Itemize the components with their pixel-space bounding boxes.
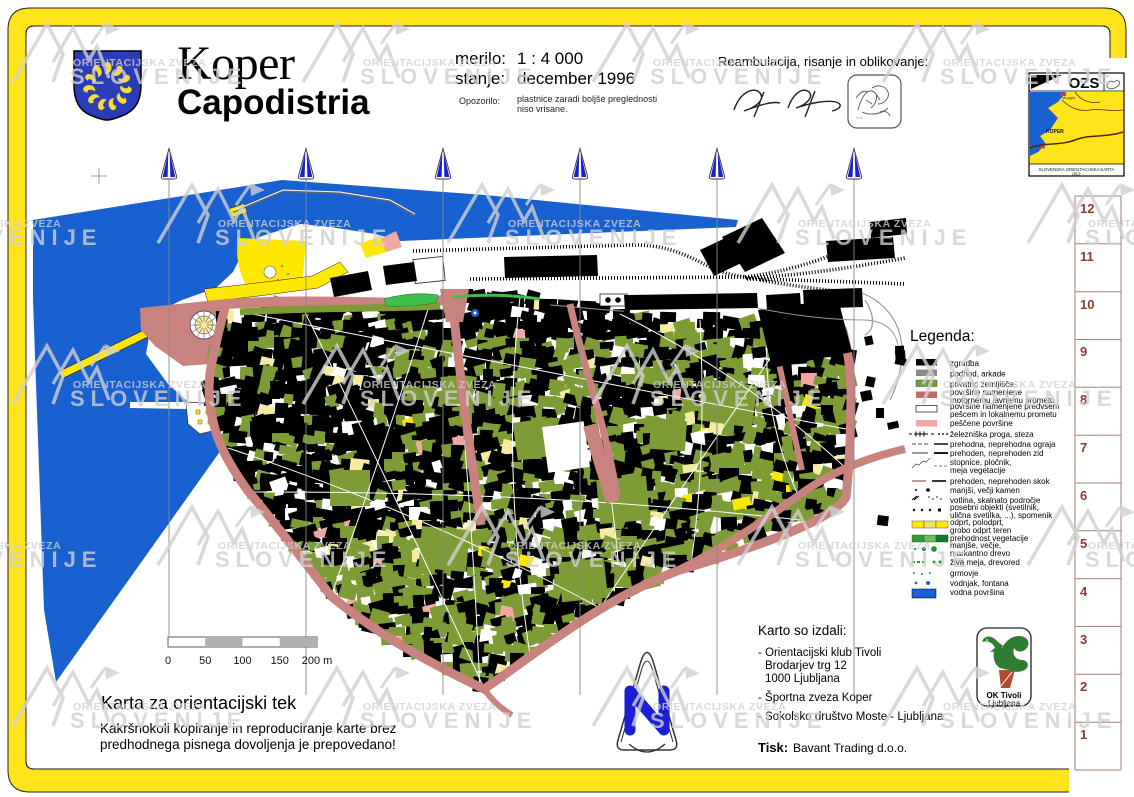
svg-text:manjši, večji kamen: manjši, večji kamen — [950, 486, 1020, 495]
svg-text:železniška proga, steza: železniška proga, steza — [950, 430, 1034, 439]
svg-text:1000 Ljubljana: 1000 Ljubljana — [765, 673, 840, 685]
svg-text:pešcem in lokalnemu prometu: pešcem in lokalnemu prometu — [950, 410, 1057, 419]
svg-text:150: 150 — [271, 655, 289, 667]
svg-text:Opozorilo:: Opozorilo: — [459, 96, 500, 106]
svg-text:Karto so izdali:: Karto so izdali: — [758, 623, 847, 638]
svg-text:Tisk:: Tisk: — [758, 740, 788, 755]
svg-text:meja vegetacije: meja vegetacije — [950, 466, 1006, 475]
svg-text:prehodna, neprehodna ograja: prehodna, neprehodna ograja — [950, 440, 1056, 449]
svg-text:- Orientacijski klub Tivoli: - Orientacijski klub Tivoli — [758, 647, 881, 659]
svg-text:Izola: Izola — [1032, 143, 1041, 148]
svg-text:prehoden, neprehoden zid: prehoden, neprehoden zid — [950, 449, 1043, 458]
svg-text:9: 9 — [1080, 344, 1087, 359]
svg-text:10: 10 — [1080, 297, 1094, 312]
svg-text:KOPER: KOPER — [1046, 129, 1064, 135]
svg-text:vodnjak, fontana: vodnjak, fontana — [950, 579, 1009, 588]
svg-text:Legenda:: Legenda: — [910, 328, 975, 345]
svg-text:predhodnega pisnega dovoljenja: predhodnega pisnega dovoljenja je prepov… — [100, 737, 396, 752]
svg-text:100: 100 — [233, 655, 251, 667]
svg-text:11: 11 — [1080, 249, 1094, 264]
svg-text:12: 12 — [1080, 201, 1094, 216]
svg-text:50: 50 — [199, 655, 211, 667]
svg-text:peščene površine: peščene površine — [950, 419, 1013, 428]
svg-text:SLOVENSKA ORIENTACIJSKA KART: SLOVENSKA ORIENTACIJSKA KARTA — [1039, 167, 1115, 172]
svg-text:052: 052 — [1072, 173, 1081, 179]
svg-text:2: 2 — [1080, 679, 1087, 694]
svg-text:niso vrisane.: niso vrisane. — [517, 104, 568, 114]
svg-text:Brodarjev trg 12: Brodarjev trg 12 — [765, 660, 847, 672]
svg-text:Muggia: Muggia — [1062, 95, 1076, 100]
svg-text:7: 7 — [1080, 440, 1087, 455]
svg-text:4: 4 — [1080, 584, 1088, 599]
svg-text:0: 0 — [165, 655, 171, 667]
svg-text:3: 3 — [1080, 632, 1087, 647]
svg-text:6: 6 — [1080, 488, 1087, 503]
svg-text:200 m: 200 m — [302, 655, 333, 667]
svg-text:prehoden, neprehoden skok: prehoden, neprehoden skok — [950, 477, 1051, 486]
svg-text:Bavant Trading d.o.o.: Bavant Trading d.o.o. — [793, 741, 907, 755]
svg-text:vodna površina: vodna površina — [950, 588, 1005, 597]
svg-text:~~: ~~ — [856, 116, 864, 122]
svg-text:plastnice zaradi boljše pregle: plastnice zaradi boljše preglednosti — [517, 94, 657, 104]
